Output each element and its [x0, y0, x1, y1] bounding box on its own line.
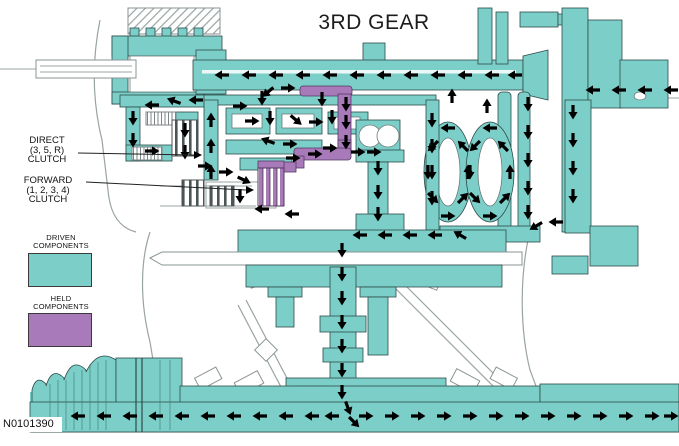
forward-clutch-pack [258, 168, 284, 206]
figure-id: N0101390 [0, 417, 62, 432]
clutch-packs [132, 112, 234, 206]
transmission-power-flow-figure: 3RD GEAR DIRECT (3, 5, R) CLUTCH FORWARD… [0, 0, 679, 446]
forward-clutch-callout: FORWARD (1, 2, 3, 4) CLUTCH [10, 176, 86, 205]
page-title: 3RD GEAR [318, 11, 429, 35]
transmission-cross-section [0, 0, 679, 446]
driven-components-swatch [28, 253, 92, 287]
held-components-legend-label: HELD COMPONENTS [24, 295, 98, 311]
direct-clutch-callout: DIRECT (3, 5, R) CLUTCH [12, 136, 82, 165]
driven-components-legend-label: DRIVEN COMPONENTS [24, 234, 98, 250]
held-components-swatch [28, 313, 92, 347]
driven-components [30, 8, 679, 432]
